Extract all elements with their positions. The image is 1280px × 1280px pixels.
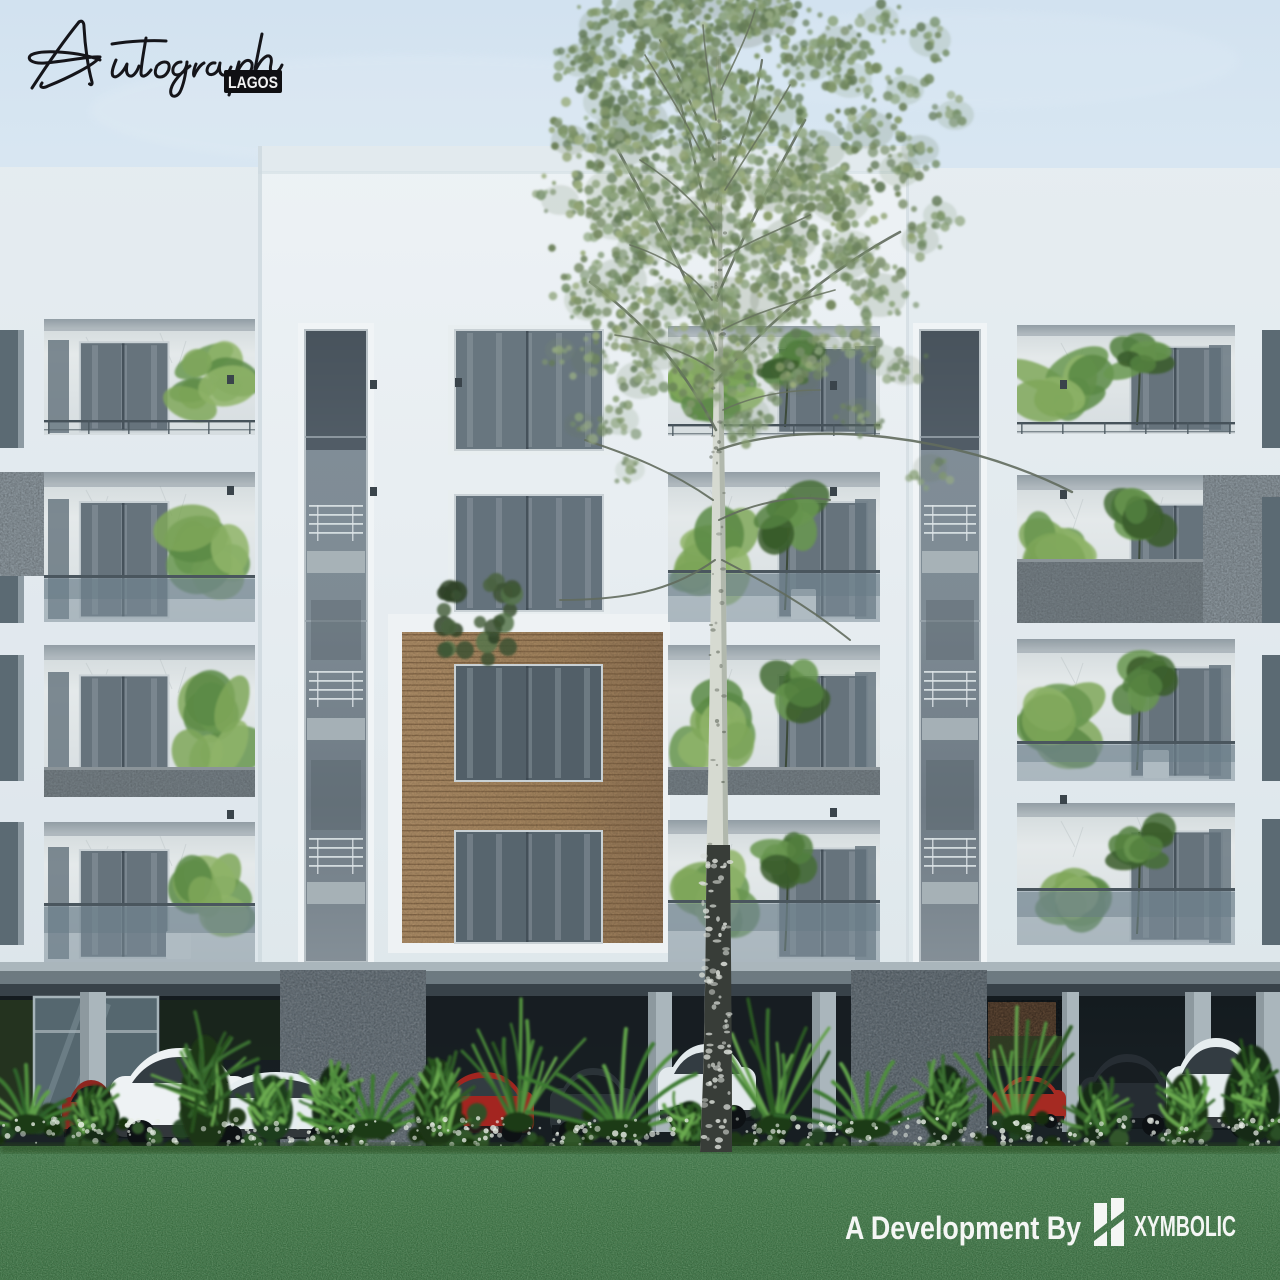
svg-text:A Development By: A Development By xyxy=(845,1210,1081,1246)
svg-text:XYMBOLIC: XYMBOLIC xyxy=(1134,1211,1236,1243)
svg-text:LAGOS: LAGOS xyxy=(228,73,278,92)
